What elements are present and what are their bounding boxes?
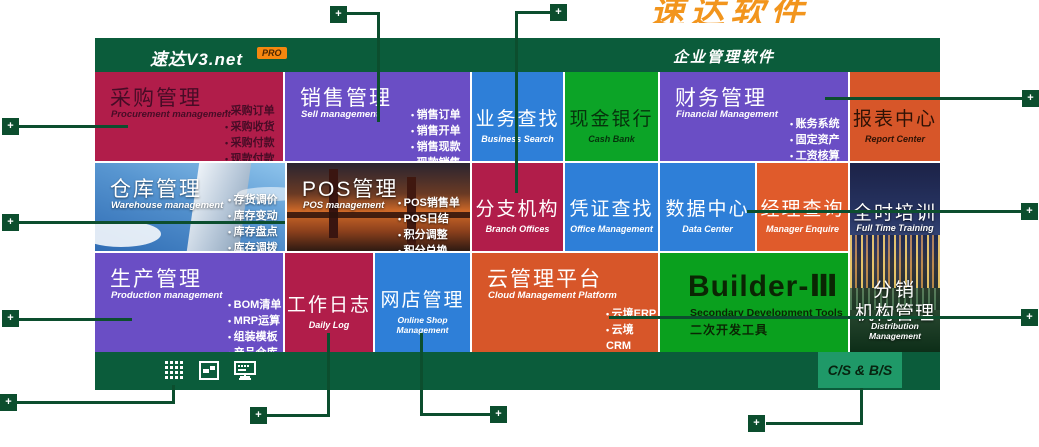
tile-builder-dev-tools[interactable]: Builder-Ⅲ Secondary Development Tools 二次… xyxy=(660,253,848,352)
list-item[interactable]: 云境CRM xyxy=(606,322,658,352)
tile-bullet-list: 采购订单 采购收货 采购付款 现款付款 xyxy=(225,103,275,161)
list-item[interactable]: 存货调价 xyxy=(228,192,278,208)
callout-line xyxy=(267,414,330,417)
callout-line xyxy=(8,401,175,404)
tile-title: 财务管理 xyxy=(675,82,767,112)
plus-glyph: + xyxy=(1026,206,1032,217)
tile-title: 现金银行 xyxy=(569,104,653,131)
tile-cloud-management-platform[interactable]: 云管理平台 Cloud Management Platform 云境ERP 云境… xyxy=(472,253,658,352)
plus-glyph: + xyxy=(5,397,11,408)
plus-glyph: + xyxy=(555,7,561,18)
tile-production-management[interactable]: 生产管理 Production management BOM清单 MRP运算 组… xyxy=(95,253,283,352)
callout-line xyxy=(609,316,1021,319)
callout-line xyxy=(327,333,330,417)
brand-watermark-text: 速达软件 xyxy=(650,0,810,23)
list-item[interactable]: 积分兑换 xyxy=(398,243,460,251)
callout-line xyxy=(825,97,1022,100)
plus-marker-icon[interactable]: + xyxy=(1021,203,1038,220)
cs-bs-badge: C/S & B/S xyxy=(818,352,902,388)
image-icon[interactable] xyxy=(199,361,219,380)
tile-title: 分支机构 xyxy=(475,194,559,221)
app-logo: 速达V3.net xyxy=(150,45,243,70)
monitor-icon[interactable] xyxy=(234,361,256,380)
list-item[interactable]: MRP运算 xyxy=(228,313,281,329)
tile-title: 凭证查找 xyxy=(569,194,653,221)
tile-title: 工作日志 xyxy=(287,290,371,317)
callout-line xyxy=(747,210,1021,213)
plus-marker-icon[interactable]: + xyxy=(1021,309,1038,326)
tile-bullet-list: 云境ERP 云境CRM 云境SOHO xyxy=(606,306,658,352)
tile-bullet-list: 销售订单 销售开单 销售现款 现款销售 xyxy=(411,107,461,161)
tile-pos-management[interactable]: POS管理 POS management POS销售单 POS日结 积分调整 积… xyxy=(287,163,470,251)
tile-subtitle: Production management xyxy=(111,290,222,301)
tile-title: POS管理 xyxy=(302,173,398,203)
list-item[interactable]: POS日结 xyxy=(398,211,460,227)
tile-subtitle: Warehouse management xyxy=(111,200,223,211)
tile-subtitle: Report Center xyxy=(865,134,925,144)
list-item[interactable]: 账务系统 xyxy=(790,116,840,132)
tile-subtitle-cn: 二次开发工具 xyxy=(690,321,768,338)
grid-icon[interactable] xyxy=(165,361,184,380)
callout-line xyxy=(17,125,128,128)
pro-badge: PRO xyxy=(257,47,287,59)
plus-marker-icon[interactable]: + xyxy=(2,310,19,327)
plus-marker-icon[interactable]: + xyxy=(748,415,765,432)
plus-marker-icon[interactable]: + xyxy=(1022,90,1039,107)
plus-glyph: + xyxy=(1026,312,1032,323)
tile-title: 经理查询 xyxy=(760,194,844,221)
tile-subtitle: Online Shop Management xyxy=(375,315,470,335)
app-canvas: 速达软件 速达V3.net PRO 企业管理软件 采购管理 Procuremen… xyxy=(0,0,1039,447)
tile-title: Builder-Ⅲ xyxy=(688,269,839,304)
tile-cash-bank[interactable]: 现金银行 Cash Bank xyxy=(565,72,658,161)
list-item[interactable]: 工资核算 xyxy=(790,148,840,161)
callout-line xyxy=(515,11,552,14)
plus-marker-icon[interactable]: + xyxy=(2,118,19,135)
tile-subtitle: Procurement management xyxy=(111,109,231,120)
tile-subtitle: Sell management xyxy=(301,109,379,120)
tile-subtitle: Cloud Management Platform xyxy=(488,290,617,301)
list-item[interactable]: 销售订单 xyxy=(411,107,461,123)
list-item[interactable]: 现款付款 xyxy=(225,151,275,161)
callout-line xyxy=(17,221,285,224)
plus-marker-icon[interactable]: + xyxy=(2,214,19,231)
tile-subtitle: Financial Management xyxy=(676,109,778,120)
tile-subtitle: Branch Offices xyxy=(486,224,550,234)
list-item[interactable]: 云境ERP xyxy=(606,306,658,322)
tile-warehouse-management[interactable]: 仓库管理 Warehouse management 存货调价 库存变动 库存盘点… xyxy=(95,163,285,251)
plus-glyph: + xyxy=(255,410,261,421)
plus-marker-icon[interactable]: + xyxy=(330,6,347,23)
tile-subtitle: Manager Enquire xyxy=(766,224,839,234)
tile-data-center[interactable]: 数据中心 Data Center xyxy=(660,163,755,251)
tile-subtitle: POS management xyxy=(303,200,384,211)
plus-glyph: + xyxy=(1027,93,1033,104)
plus-glyph: + xyxy=(7,217,13,228)
tile-subtitle: Office Management xyxy=(570,224,653,234)
plus-marker-icon[interactable]: + xyxy=(550,4,567,21)
tile-report-center[interactable]: 报表中心 Report Center xyxy=(850,72,940,161)
tile-voucher-search[interactable]: 凭证查找 Office Management xyxy=(565,163,658,251)
tile-subtitle-distribution: Distribution Management xyxy=(850,321,940,341)
list-item[interactable]: 积分调整 xyxy=(398,227,460,243)
callout-line xyxy=(17,318,132,321)
list-item[interactable]: POS销售单 xyxy=(398,195,460,211)
callout-line xyxy=(422,413,490,416)
tile-title: 数据中心 xyxy=(665,194,749,221)
tile-title: 云管理平台 xyxy=(487,263,602,293)
tile-title: 报表中心 xyxy=(853,104,937,131)
callout-line xyxy=(420,333,423,416)
product-title: 企业管理软件 xyxy=(673,46,775,67)
tile-bullet-list: BOM清单 MRP运算 组装模板 产品仓库 xyxy=(228,297,281,352)
tile-bullet-list: POS销售单 POS日结 积分调整 积分兑换 xyxy=(398,195,460,251)
list-item[interactable]: 采购收货 xyxy=(225,119,275,135)
list-item[interactable]: 采购订单 xyxy=(225,103,275,119)
callout-line xyxy=(377,12,380,122)
plus-marker-icon[interactable]: + xyxy=(250,407,267,424)
tile-training-and-distribution[interactable]: 全时培训 Full Time Training 分销 机构管理 Distribu… xyxy=(850,163,940,352)
plus-glyph: + xyxy=(7,121,13,132)
footer-bar: C/S & B/S xyxy=(95,352,940,390)
list-item[interactable]: 采购付款 xyxy=(225,135,275,151)
tile-subtitle: Daily Log xyxy=(309,320,350,330)
tile-manager-enquire[interactable]: 经理查询 Manager Enquire xyxy=(757,163,848,251)
list-item[interactable]: 销售现款 xyxy=(411,139,461,155)
list-item[interactable]: 现款销售 xyxy=(411,155,461,161)
tile-purchase-management[interactable]: 采购管理 Procurement management 采购订单 采购收货 采购… xyxy=(95,72,283,161)
tile-subtitle: Data Center xyxy=(682,224,733,234)
callout-line xyxy=(347,12,379,15)
list-item[interactable]: 库存盘点 xyxy=(228,224,278,240)
list-item[interactable]: BOM清单 xyxy=(228,297,281,313)
callout-line xyxy=(860,388,863,425)
list-item[interactable]: 库存调拨 xyxy=(228,240,278,251)
plus-glyph: + xyxy=(495,409,501,420)
tile-subtitle: Cash Bank xyxy=(588,134,635,144)
plus-glyph: + xyxy=(335,9,341,20)
tile-bullet-list: 账务系统 固定资产 工资核算 xyxy=(790,116,840,161)
plus-glyph: + xyxy=(7,313,13,324)
plus-marker-icon[interactable]: + xyxy=(0,394,17,411)
brand-watermark: 速达软件 xyxy=(650,0,930,23)
plus-marker-icon[interactable]: + xyxy=(490,406,507,423)
list-item[interactable]: 组装模板 xyxy=(228,329,281,345)
callout-line xyxy=(766,422,863,425)
footer-icon-group xyxy=(165,361,256,380)
callout-line xyxy=(172,385,175,404)
tile-financial-management[interactable]: 财务管理 Financial Management 账务系统 固定资产 工资核算 xyxy=(660,72,848,161)
tile-title: 仓库管理 xyxy=(110,173,202,203)
plus-glyph: + xyxy=(753,418,759,429)
tile-title: 采购管理 xyxy=(110,82,202,112)
tile-subtitle-training: Full Time Training xyxy=(850,223,940,233)
callout-line xyxy=(515,11,518,193)
list-item[interactable]: 销售开单 xyxy=(411,123,461,139)
tile-title: 生产管理 xyxy=(110,263,202,293)
list-item[interactable]: 固定资产 xyxy=(790,132,840,148)
tile-title: 网店管理 xyxy=(380,285,464,312)
list-item[interactable]: 产品仓库 xyxy=(228,345,281,352)
